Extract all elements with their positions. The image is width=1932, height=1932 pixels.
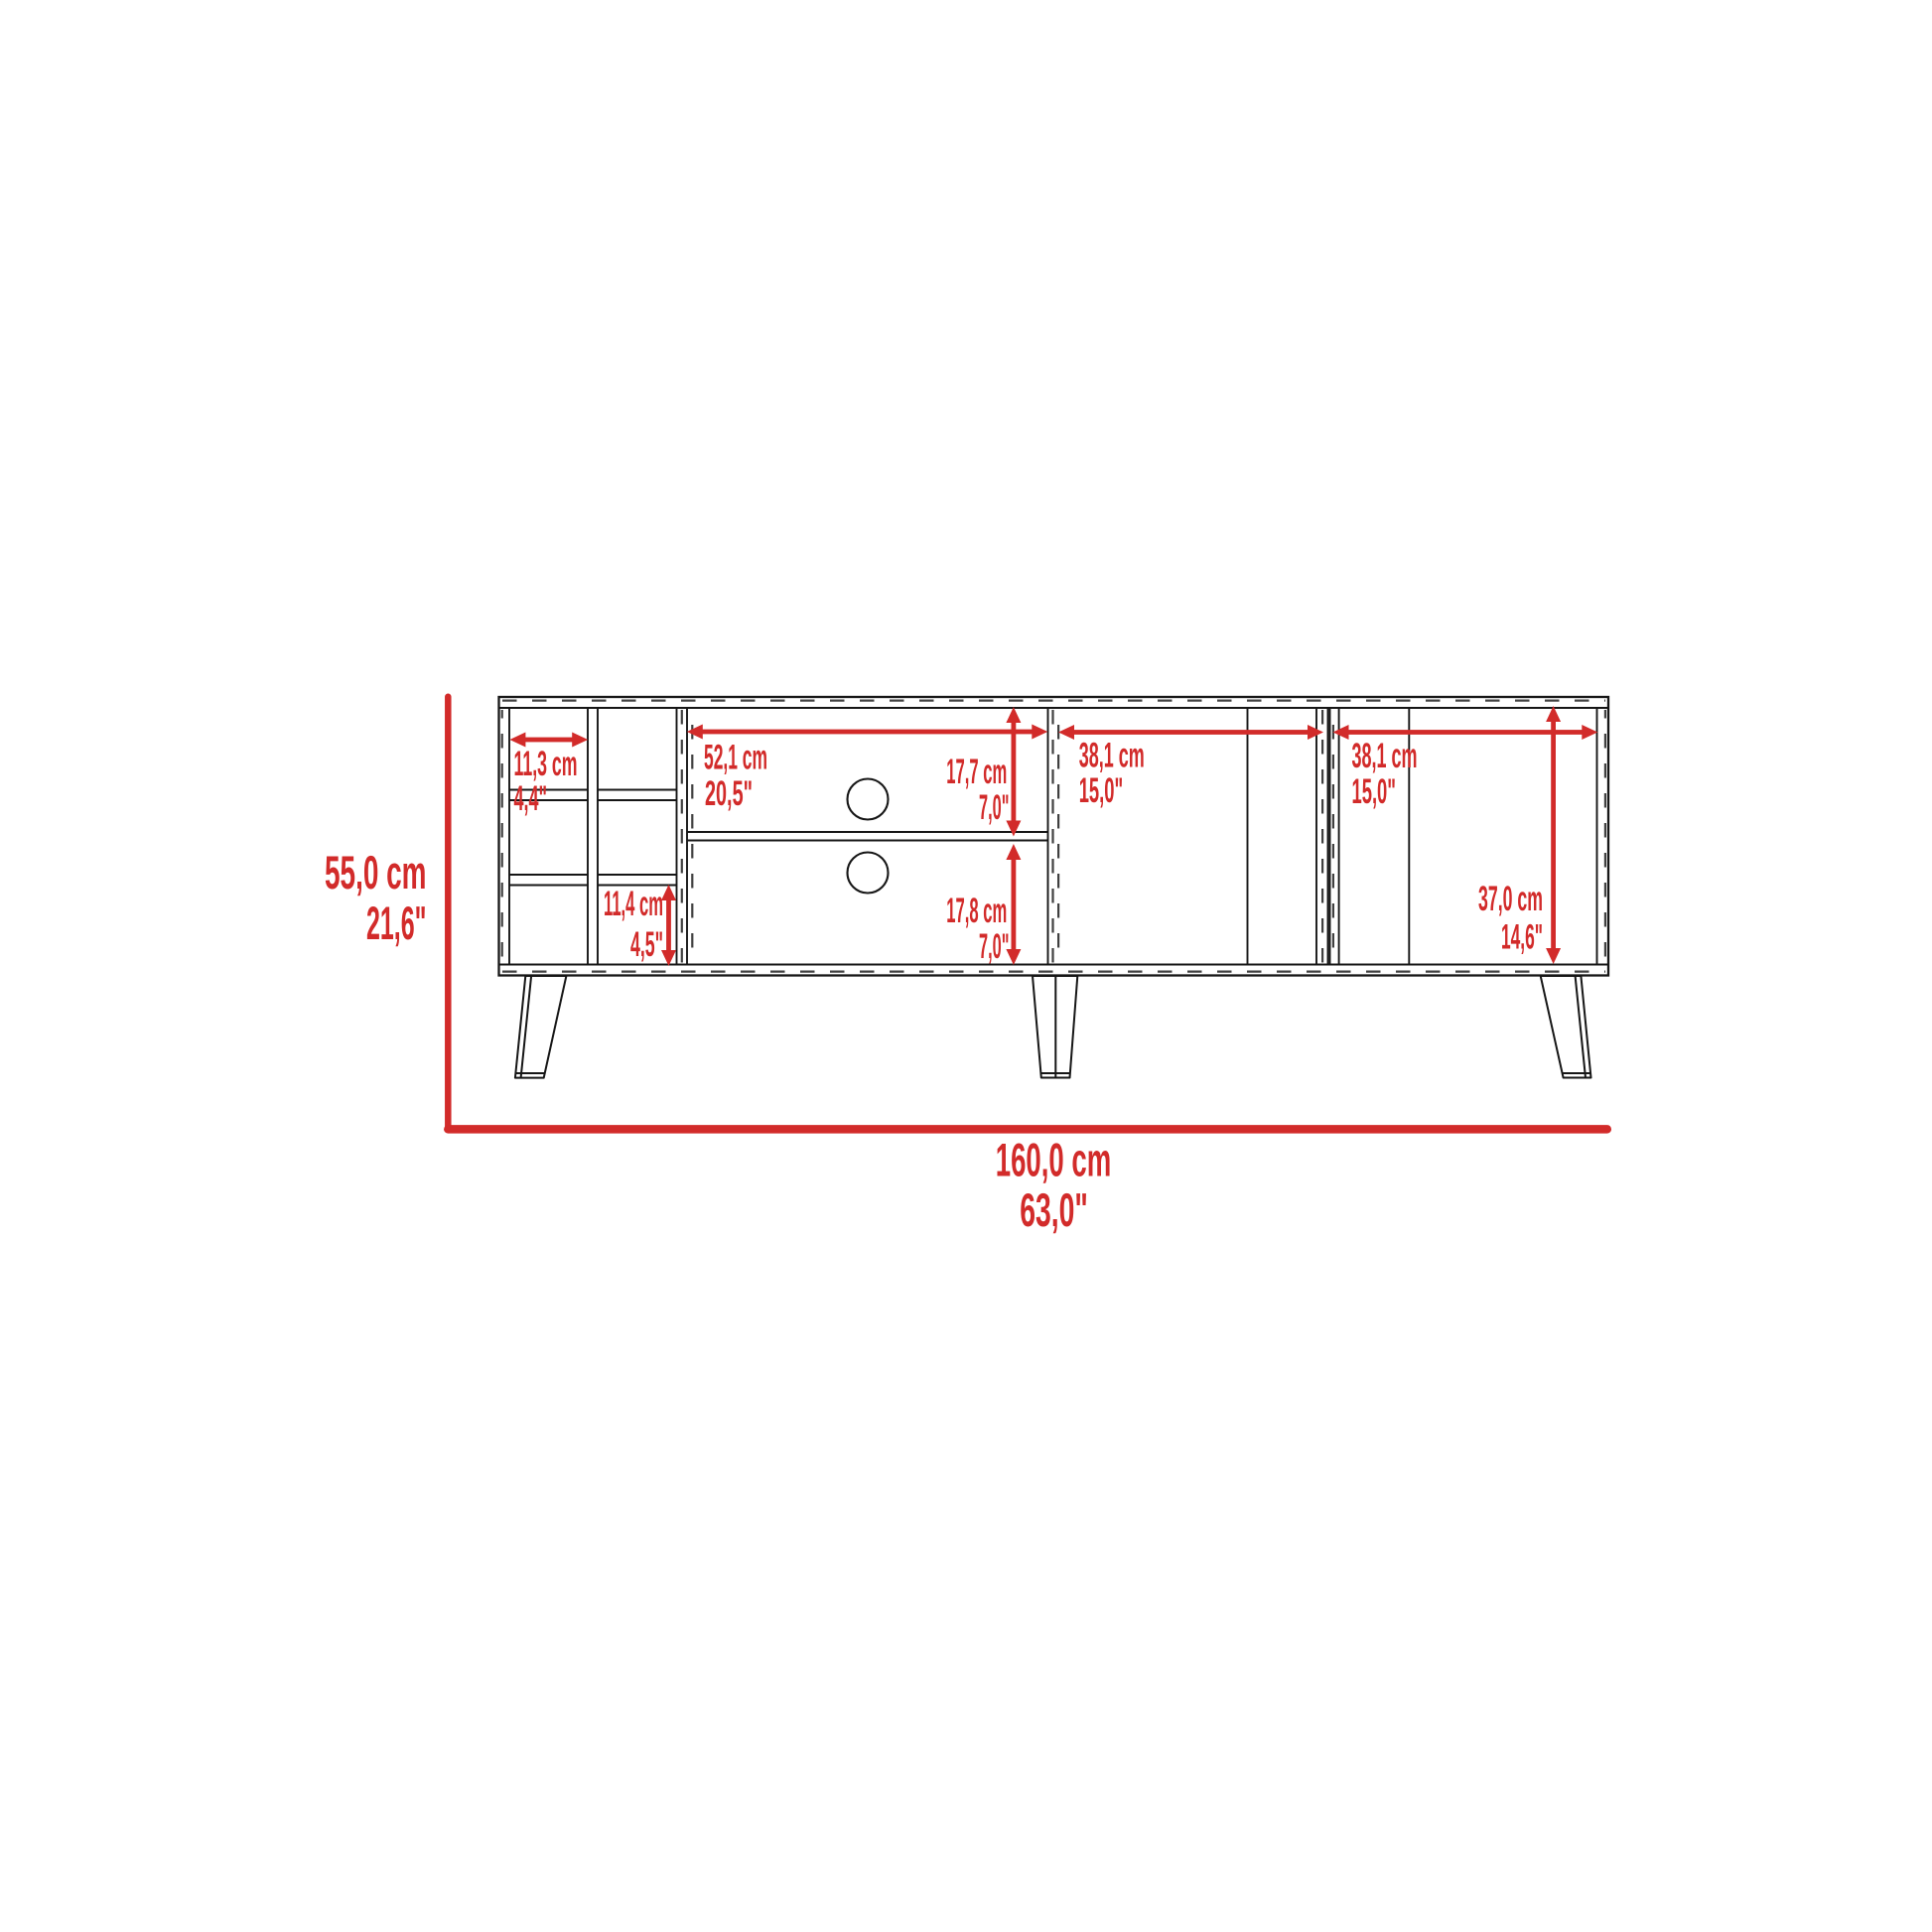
- svg-text:7,0": 7,0": [979, 788, 1010, 827]
- svg-text:15,0": 15,0": [1352, 772, 1397, 811]
- svg-text:11,4 cm: 11,4 cm: [604, 885, 663, 923]
- svg-text:4,5": 4,5": [630, 925, 663, 964]
- svg-text:38,1 cm: 38,1 cm: [1079, 737, 1145, 775]
- svg-text:160,0 cm: 160,0 cm: [996, 1133, 1112, 1185]
- svg-text:52,1 cm: 52,1 cm: [704, 739, 767, 777]
- svg-text:63,0": 63,0": [1020, 1183, 1088, 1236]
- svg-text:38,1 cm: 38,1 cm: [1352, 737, 1418, 775]
- svg-text:17,7 cm: 17,7 cm: [946, 753, 1007, 791]
- svg-text:4,4": 4,4": [514, 779, 548, 818]
- svg-text:55,0 cm: 55,0 cm: [325, 846, 427, 898]
- svg-text:37,0 cm: 37,0 cm: [1478, 880, 1543, 918]
- svg-text:14,6": 14,6": [1501, 918, 1543, 957]
- svg-text:17,8 cm: 17,8 cm: [946, 892, 1007, 930]
- svg-text:21,6": 21,6": [366, 897, 427, 949]
- svg-text:15,0": 15,0": [1079, 771, 1124, 810]
- svg-text:11,3 cm: 11,3 cm: [514, 745, 578, 783]
- svg-text:20,5": 20,5": [705, 774, 753, 813]
- svg-text:7,0": 7,0": [979, 927, 1010, 966]
